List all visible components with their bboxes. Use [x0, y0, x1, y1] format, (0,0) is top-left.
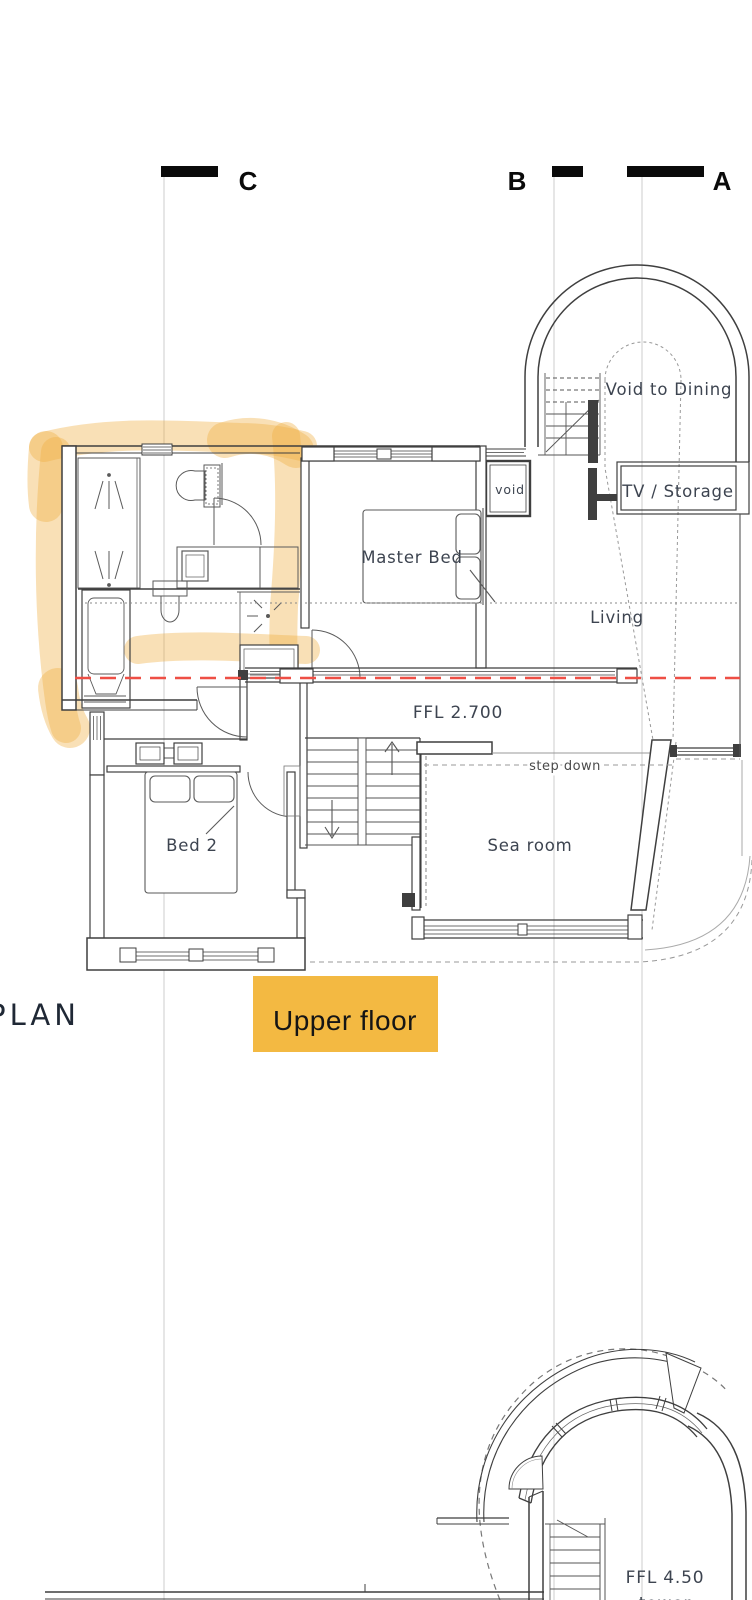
section-bar-b: [552, 166, 583, 177]
highlighter-annotation: [44, 435, 306, 728]
section-markers: C B A: [161, 166, 732, 196]
hall-left-window: [90, 712, 104, 775]
section-bar-a: [627, 166, 704, 177]
label-void-to-dining: Void to Dining: [606, 380, 733, 399]
lower-floor-plan: [45, 1349, 746, 1600]
tower-arch-walls: [525, 265, 749, 462]
section-bar-c: [161, 166, 218, 177]
label-void: void: [495, 482, 525, 497]
dashed-outlines: [310, 759, 752, 962]
link-window: [480, 449, 526, 456]
label-tower-partial: tower: [639, 1594, 691, 1600]
window-top-small: [142, 444, 172, 455]
label-master-bed: Master Bed: [361, 548, 463, 567]
stairs-up-arrow: [385, 742, 399, 775]
floorplan-drawing: C B A Void to Dining TV / Storage void M…: [0, 0, 752, 1600]
wall-blocks: [588, 400, 617, 520]
south-window-wall: [245, 668, 637, 683]
label-ffl-2700: FFL 2.700: [413, 703, 503, 723]
label-living: Living: [590, 608, 644, 627]
section-letter-b: B: [508, 166, 527, 196]
east-window: [670, 514, 741, 757]
floor-tag-text: Upper floor: [273, 1005, 417, 1036]
tower-roof-band: [477, 1349, 701, 1522]
tower-walls: [437, 1491, 543, 1600]
tower-glazed-band: [519, 1396, 707, 1503]
window-master-top: [302, 447, 480, 461]
upper-floor-plan: [62, 265, 752, 970]
stairs-down-arrow: [325, 800, 339, 838]
label-ffl-450: FFL 4.50: [626, 1568, 705, 1588]
plan-title: PLAN: [0, 998, 80, 1032]
floor-tag: Upper floor: [253, 976, 438, 1052]
tower-bottom-wall: [45, 1584, 544, 1599]
tower-door: [509, 1456, 543, 1489]
section-letter-c: C: [239, 166, 258, 196]
label-step-down: step down: [529, 759, 601, 774]
wardrobe-symbols: [95, 474, 123, 587]
main-stairs: [305, 738, 420, 848]
label-tv-storage: TV / Storage: [621, 482, 734, 501]
label-sea-room: Sea room: [487, 836, 572, 855]
room-labels: Void to Dining TV / Storage void Master …: [166, 380, 734, 1600]
label-bed-2: Bed 2: [166, 836, 218, 855]
ensuite-interior: [78, 458, 300, 708]
floorplan-sheet: C B A Void to Dining TV / Storage void M…: [0, 0, 752, 1600]
section-letter-a: A: [713, 166, 732, 196]
bed2-furniture: [145, 772, 237, 893]
